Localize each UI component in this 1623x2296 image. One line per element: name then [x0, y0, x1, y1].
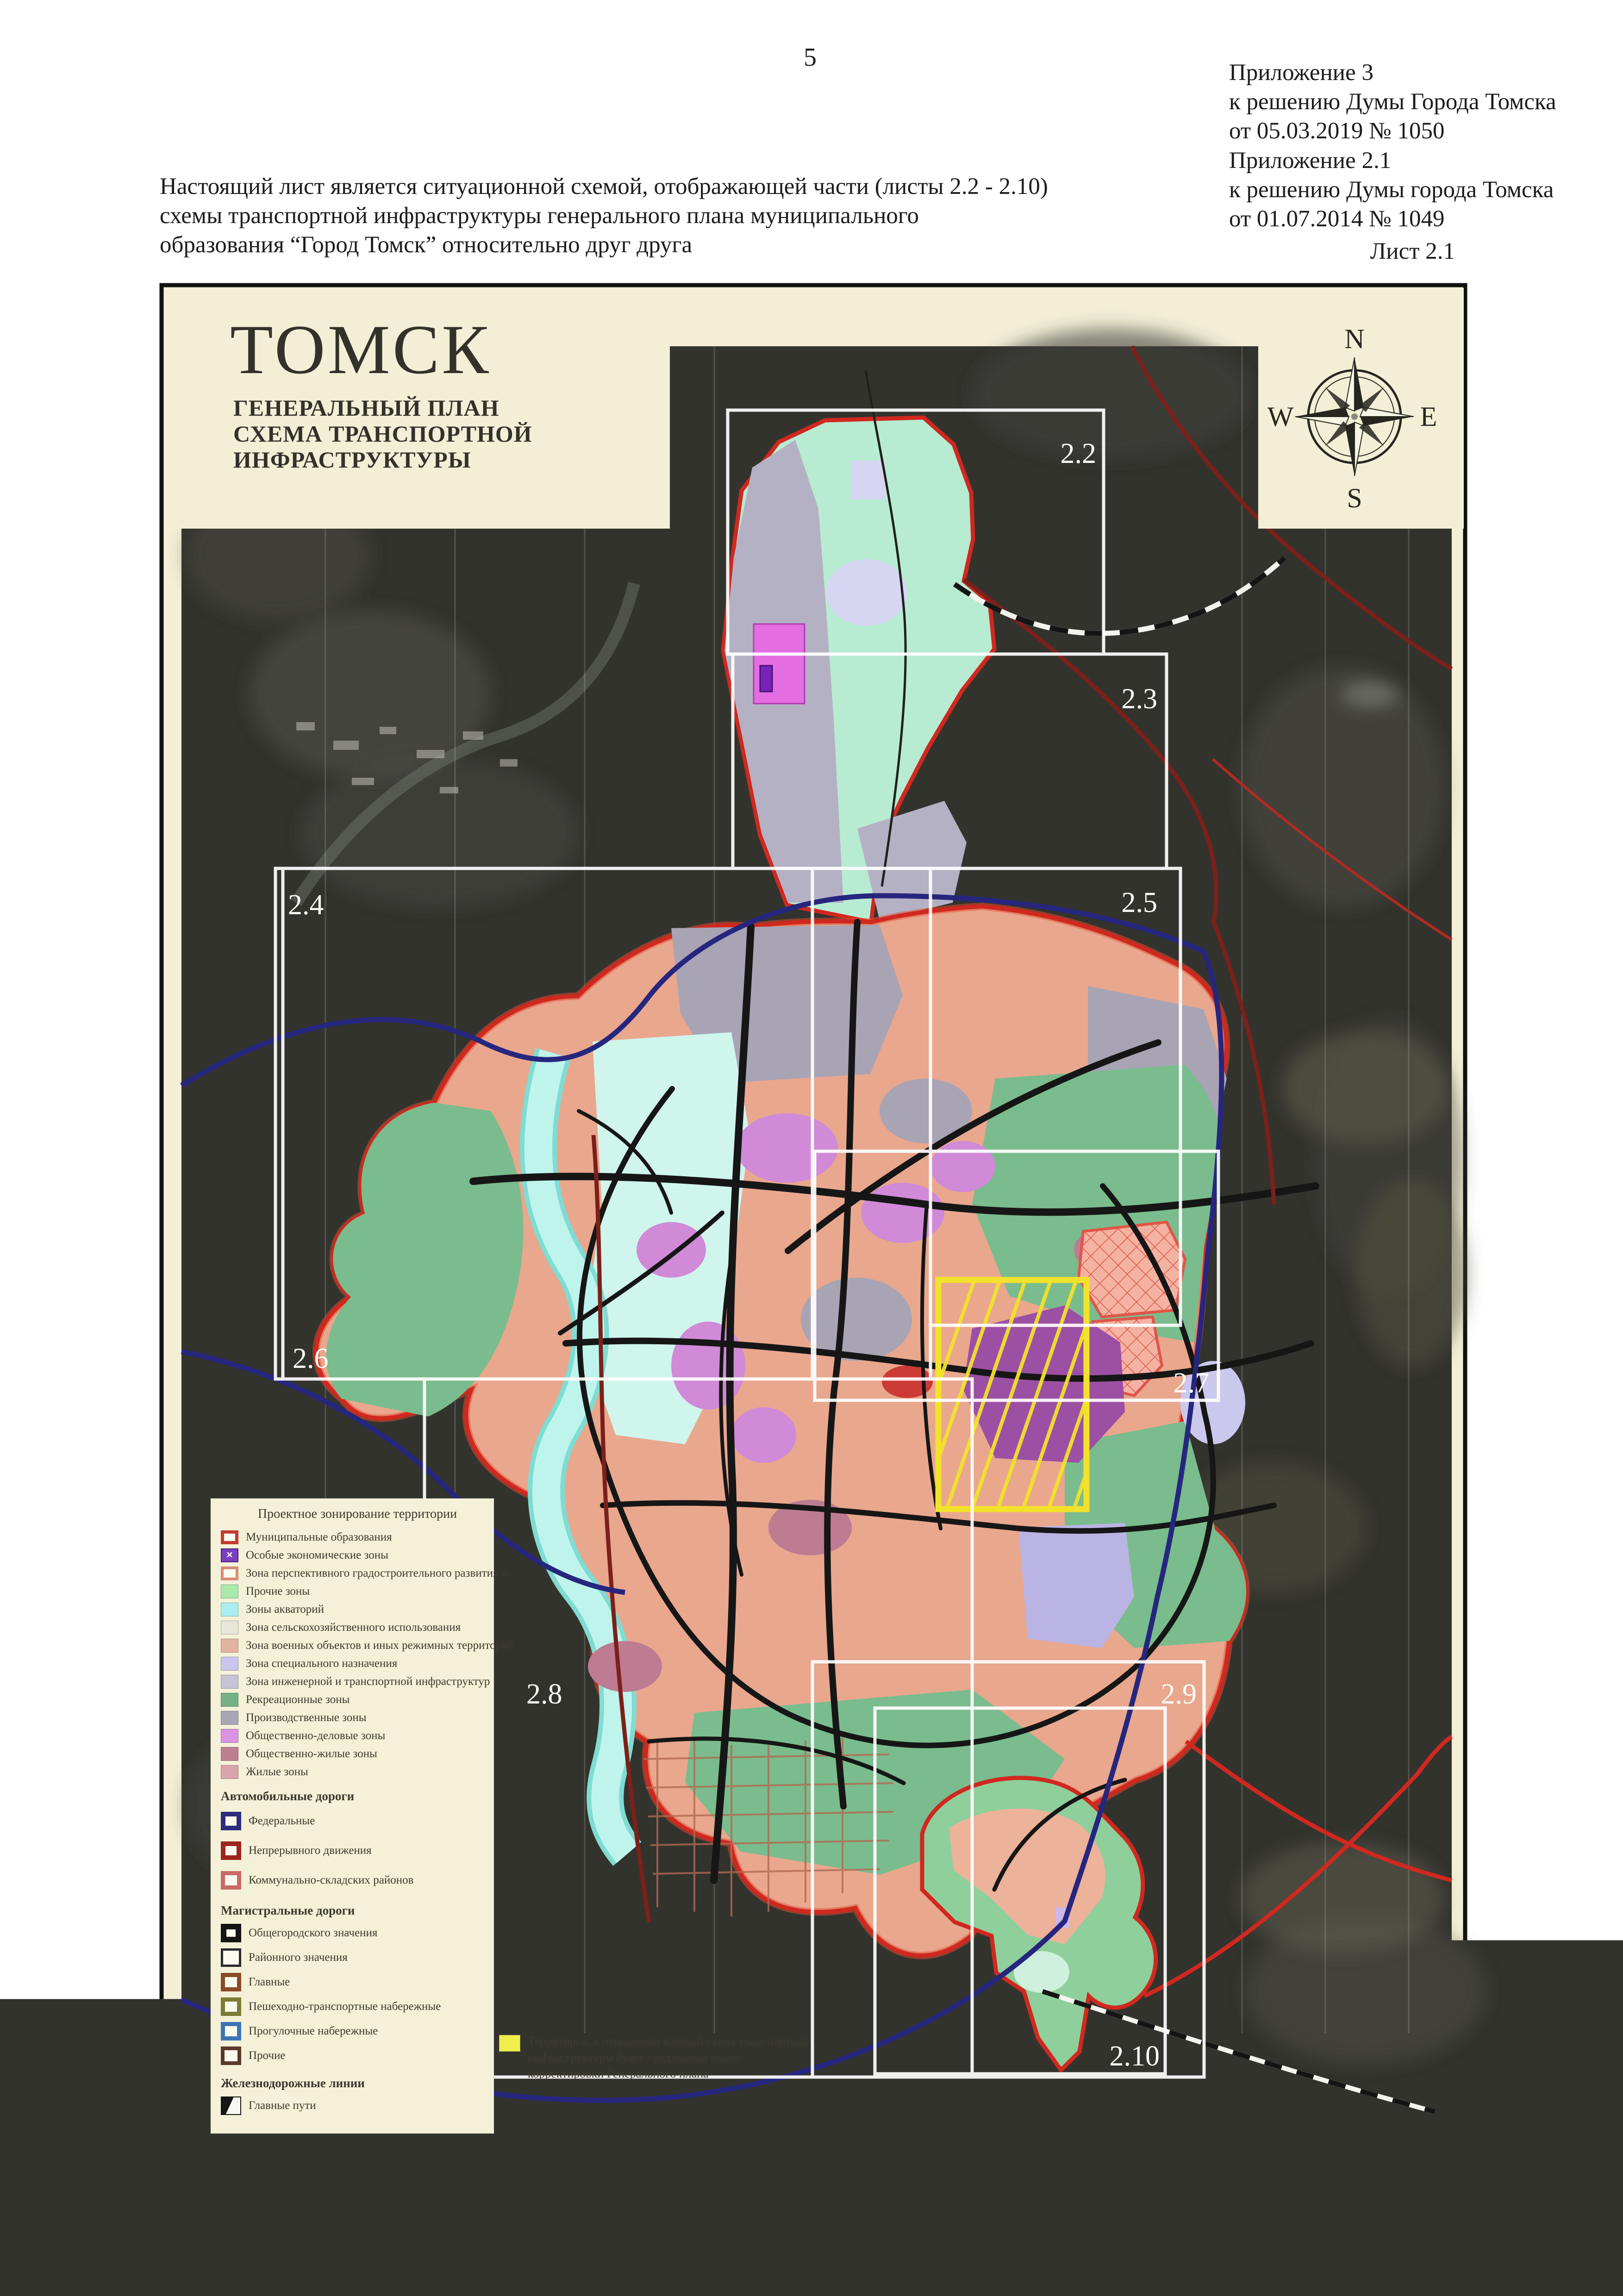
legend-label: Непрерывного движения	[249, 1844, 372, 1857]
legend-label: Зона специального назначения	[246, 1657, 397, 1670]
legend-swatch	[221, 2046, 241, 2065]
legend-swatch	[221, 1997, 241, 2016]
grid-label-2-6: 2.6	[293, 1343, 329, 1374]
legend-item: Муниципальные образования	[221, 1528, 494, 1546]
legend-label: Прочие	[249, 2049, 285, 2062]
legend-swatch	[221, 1657, 238, 1671]
legend-label: Особые экономические зоны	[246, 1549, 388, 1562]
legend-swatch	[221, 2096, 241, 2115]
legend-item: Зона перспективного градостроительного р…	[221, 1564, 494, 1582]
legend-item: Пешеходно-транспортные набережные	[221, 1994, 494, 2019]
map-subtitle-1: ГЕНЕРАЛЬНЫЙ ПЛАН	[233, 394, 668, 421]
compass-north: N	[1344, 324, 1364, 354]
legend-item: Главные пути	[221, 2093, 494, 2118]
legend-label: Прогулочные набережные	[249, 2025, 378, 2038]
legend-label: Общественно-деловые зоны	[246, 1729, 385, 1742]
legend-swatch	[221, 1711, 238, 1725]
legend-item: Зоны акваторий	[221, 1600, 494, 1618]
legend-label: Рекреационные зоны	[246, 1693, 350, 1706]
legend-swatch	[221, 1924, 241, 1942]
legend-item: Районного значения	[221, 1945, 494, 1970]
legend-item: Главные	[221, 1970, 494, 1994]
legend-item: Рекреационные зоны	[221, 1691, 494, 1709]
legend-label: Районного значения	[249, 1951, 348, 1964]
legend-item: Зона специального назначения	[221, 1654, 494, 1672]
legend-swatch	[221, 1530, 238, 1544]
grid-label-2-5: 2.5	[1122, 887, 1158, 918]
legend-swatch	[221, 1639, 238, 1653]
legend-label: Производственные зоны	[246, 1711, 367, 1724]
legend-label: Федеральные	[249, 1815, 315, 1828]
signature-left-title: Председатель Думы Города Томска	[171, 2181, 531, 2209]
legend-label: Прочие зоны	[246, 1585, 310, 1598]
legend-item: Жилые зоны	[221, 1763, 494, 1781]
highlight-note-swatch	[499, 2035, 520, 2052]
legend-label: Муниципальные образования	[246, 1531, 392, 1544]
grid-label-2-4: 2.4	[288, 889, 324, 921]
legend-swatch	[221, 1871, 241, 1890]
legend-label: Общегородского значения	[249, 1927, 377, 1940]
legend-item: Общественно-жилые зоны	[221, 1745, 494, 1763]
legend-item: Прочие зоны	[221, 1582, 494, 1600]
legend-swatch	[221, 1675, 238, 1689]
legend-swatch: ✕	[221, 1548, 238, 1562]
highlight-note-label: Территория, в отношении которой схема тр…	[528, 2033, 814, 2082]
highlight-note: Территория, в отношении которой схема тр…	[499, 2033, 814, 2082]
grid-label-2-8: 2.8	[526, 1678, 562, 1710]
legend-title: Проектное зонирование территории	[221, 1507, 494, 1522]
grid-label-2-7: 2.7	[1174, 1367, 1210, 1399]
legend-swatch	[221, 1693, 238, 1707]
legend-swatch	[221, 1621, 238, 1635]
legend-swatch	[221, 1765, 238, 1779]
legend-item: Прочие	[221, 2043, 494, 2068]
grid-label-2-2: 2.2	[1061, 438, 1097, 469]
legend-swatch	[221, 1566, 238, 1580]
legend-label: Главные	[249, 1976, 290, 1989]
legend-swatch	[221, 1603, 238, 1616]
legend-swatch	[221, 1948, 241, 1967]
legend-panel: Проектное зонирование территории Муницип…	[211, 1498, 494, 2134]
legend-label: Коммунально-складских районов	[249, 1874, 413, 1887]
legend-label: Зона инженерной и транспортной инфрастру…	[246, 1675, 490, 1688]
signature-left-name: С.Ю. Панов	[422, 2215, 545, 2243]
signature-right-title: Мэр Города Томска	[1142, 2181, 1341, 2209]
signature-right-name: И.Г. Кляйн	[1361, 2215, 1473, 2243]
legend-label: Общественно-жилые зоны	[246, 1747, 377, 1760]
legend-item: Зона военных объектов и иных режимных те…	[221, 1636, 494, 1654]
legend-item: Общественно-деловые зоны	[221, 1727, 494, 1745]
legend-swatch	[221, 1973, 241, 1991]
document-page: 5 Приложение 3 к решению Думы Города Том…	[0, 0, 1623, 2296]
legend-item: Производственные зоны	[221, 1709, 494, 1727]
legend-label: Зона перспективного градостроительного р…	[246, 1567, 507, 1580]
map-title: ТОМСК	[230, 309, 491, 390]
legend-swatch	[221, 1812, 241, 1830]
legend-label: Зона сельскохозяйственного использования	[246, 1621, 461, 1634]
legend-label: Зона военных объектов и иных режимных те…	[246, 1639, 514, 1652]
map-subtitle-3: ИНФРАСТРУКТУРЫ	[233, 446, 668, 473]
legend-item: Непрерывного движения	[221, 1836, 494, 1865]
legend-item: Коммунально-складских районов	[221, 1865, 494, 1895]
legend-swatch	[221, 2022, 241, 2040]
legend-mag-header: Магистральные дороги	[221, 1903, 494, 1918]
grid-label-2-3: 2.3	[1122, 683, 1158, 715]
legend-item: ✕Особые экономические зоны	[221, 1546, 494, 1564]
legend-item: Прогулочные набережные	[221, 2019, 494, 2043]
legend-label: Зоны акваторий	[246, 1603, 324, 1616]
compass-west: W	[1267, 401, 1294, 432]
legend-swatch	[221, 1747, 238, 1761]
legend-item: Зона сельскохозяйственного использования	[221, 1618, 494, 1636]
legend-swatch	[221, 1585, 238, 1598]
signature-right-line	[1137, 2248, 1345, 2250]
legend-label: Пешеходно-транспортные набережные	[249, 2000, 441, 2013]
legend-roads-header: Автомобильные дороги	[221, 1789, 494, 1803]
compass-south: S	[1347, 483, 1362, 513]
compass-east: E	[1420, 401, 1437, 432]
legend-swatch	[221, 1841, 241, 1860]
map-subtitle-2: СХЕМА ТРАНСПОРТНОЙ	[233, 420, 668, 447]
legend-item: Зона инженерной и транспортной инфрастру…	[221, 1672, 494, 1691]
legend-rail-header: Железнодорожные линии	[221, 2076, 494, 2090]
grid-label-2-10: 2.10	[1110, 2040, 1160, 2072]
legend-item: Общегородского значения	[221, 1921, 494, 1945]
signature-left-line	[168, 2248, 374, 2250]
legend-swatch	[221, 1729, 238, 1743]
legend-label: Жилые зоны	[246, 1766, 308, 1778]
legend-label: Главные пути	[249, 2099, 316, 2112]
grid-label-2-9: 2.9	[1161, 1678, 1197, 1710]
legend-item: Федеральные	[221, 1806, 494, 1836]
